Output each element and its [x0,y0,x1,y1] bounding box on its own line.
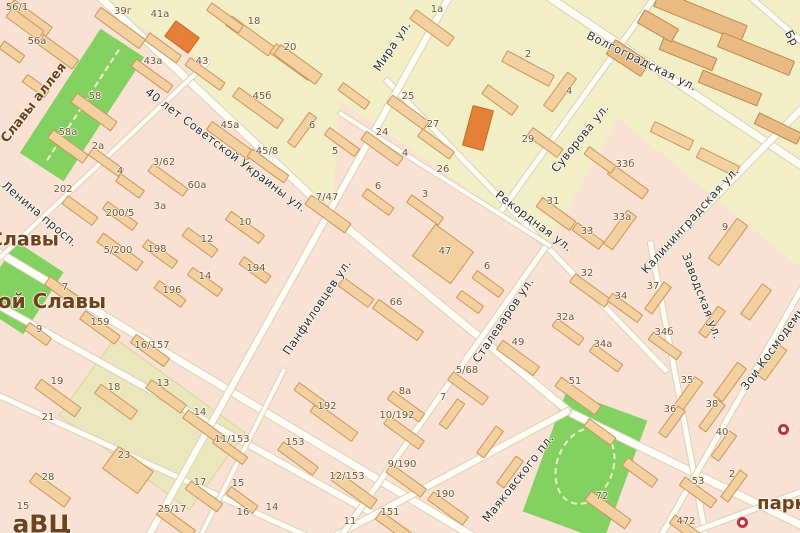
building-number-label: 196 [162,286,181,296]
building-number-label: 31 [547,197,560,207]
building-number-label: 56/1 [6,3,28,13]
building-number-label: 13 [157,379,170,389]
building-number-label: 4 [566,87,572,97]
building-number-label: 34 [615,292,628,302]
building-number-label: 3/62 [153,158,175,168]
building-number-label: 2а [92,142,105,152]
building-number-label: 24 [376,128,389,138]
building-number-label: 60а [188,181,207,191]
building-number-label: 66 [390,298,403,308]
building-number-label: 2 [729,470,735,480]
building-number-label: 153 [285,438,304,448]
building-number-label: 56а [28,37,47,47]
building-number-label: 43а [144,57,163,67]
building-number-label: 27 [427,120,440,130]
building-number-label: 202 [53,185,72,195]
building-number-label: 53 [692,477,705,487]
building-number-label: 47 [439,247,452,257]
building-number-label: 49 [512,338,525,348]
building-number-label: 198 [147,245,166,255]
building-number-label: 192 [317,402,336,412]
building-number-label: 37 [647,282,660,292]
building-number-label: 20 [284,43,297,53]
building-number-label: 29 [522,135,535,145]
building-number-label: 26 [437,165,450,175]
transit-stop-icon [778,424,789,435]
street-name-label: Волгоградская ул. [585,29,699,93]
building-number-label: 1а [431,5,444,15]
building [206,2,244,34]
building-number-label: 18 [248,17,261,27]
map-canvas[interactable]: 3118 56/156а39г41а1843а4345б45а45/85858а… [0,0,800,533]
building-number-label: 194 [246,264,265,274]
building-number-label: 5/68 [456,366,478,376]
building-number-label: 45а [221,121,240,131]
building-number-label: 14 [194,408,207,418]
building-number-label: 33б [616,160,635,170]
building-number-label: 7 [440,393,446,403]
building-number-label: 3а [154,202,167,212]
building-number-label: 7/47 [316,193,338,203]
building-number-label: 11 [344,517,357,527]
building-number-label: 34б [655,328,674,338]
building-number-label: 151 [380,508,399,518]
building-number-label: 17 [194,478,207,488]
place-name-label: парк [757,495,800,513]
building-number-label: 19 [51,377,64,387]
building-number-label: 9 [36,325,42,335]
building-number-label: 14 [199,272,212,282]
building-number-label: 58а [59,128,78,138]
building-number-label: 33а [613,213,632,223]
building-number-label: 38 [706,400,719,410]
building-number-label: 159 [90,318,109,328]
building-number-label: 4 [402,149,408,159]
building-number-label: 39г [114,7,132,17]
street-name-label: Бр [783,28,800,48]
transit-stop-icon [737,517,748,528]
building-number-label: 10/192 [379,411,414,421]
building-number-label: 9 [722,223,728,233]
building-number-label: 32а [556,313,575,323]
building-number-label: 472 [676,517,695,527]
building-number-label: 9/190 [388,460,417,470]
building-number-label: 18 [108,383,121,393]
building-number-label: 32 [581,269,594,279]
building [462,105,494,151]
building-number-label: 6 [484,262,490,272]
building-number-label: 43 [196,57,209,67]
building-number-label: 14 [266,503,279,513]
place-name-label: аВЦ [12,512,71,533]
building-number-label: 190 [435,490,454,500]
building-number-label: 15 [232,479,245,489]
building-number-label: 58 [89,92,102,102]
building-number-label: 12 [201,235,214,245]
building-number-label: 5/200 [104,246,133,256]
building-number-label: 40 [716,428,729,438]
building [650,121,695,151]
building-number-label: 10 [239,218,252,228]
building-number-label: 2 [525,50,531,60]
building-number-label: 11/153 [214,435,249,445]
place-name-label: ой Славы [0,291,106,311]
building-number-label: 8а [399,387,412,397]
place-name-label: Славы [0,231,59,250]
building-number-label: 36 [664,405,677,415]
building-number-label: 12/153 [329,472,364,482]
building-number-label: 6 [309,121,315,131]
building-number-label: 25/17 [158,505,187,515]
building-number-label: 35 [681,376,694,386]
building-number-label: 16 [237,508,250,518]
building-number-label: 34а [594,340,613,350]
building-number-label: 41а [151,10,170,20]
building [273,43,323,84]
building-number-label: 45б [253,92,272,102]
building-number-label: 33 [581,227,594,237]
building-number-label: 23 [118,451,131,461]
building-number-label: 45/8 [256,147,278,157]
building-number-label: 21 [42,413,55,423]
building-number-label: 16/157 [134,341,169,351]
building-number-label: 51 [569,377,582,387]
building-number-label: 72 [596,492,609,502]
building-number-label: 28 [42,473,55,483]
building-number-label: 4 [117,167,123,177]
building-number-label: 6 [375,182,381,192]
building-number-label: 3 [422,190,428,200]
building-number-label: 25 [402,92,415,102]
building-number-label: 200/5 [106,209,135,219]
building-number-label: 5 [332,147,338,157]
